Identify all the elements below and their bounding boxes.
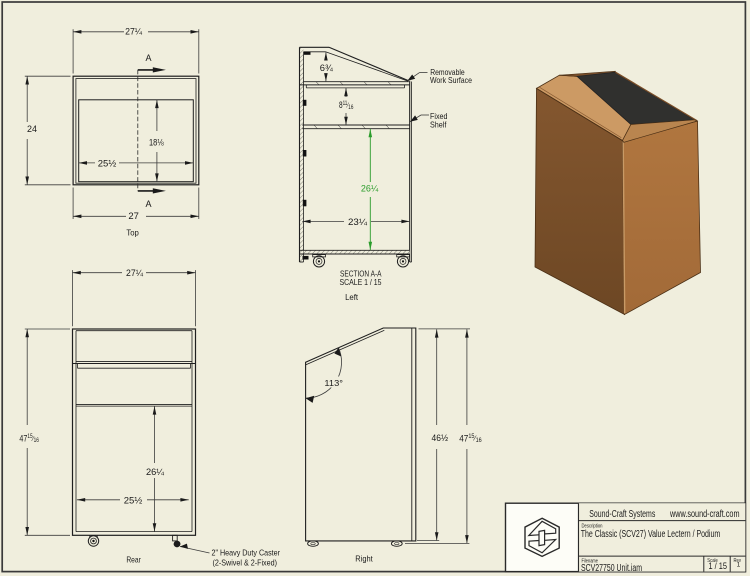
- svg-text:27¼: 27¼: [125, 27, 142, 37]
- svg-text:2" Heavy Duty Caster: 2" Heavy Duty Caster: [212, 548, 281, 558]
- svg-text:Work Surface: Work Surface: [430, 75, 472, 85]
- svg-text:A: A: [145, 199, 151, 209]
- svg-text:24: 24: [27, 124, 37, 134]
- svg-text:27¼: 27¼: [126, 268, 143, 278]
- svg-text:113°: 113°: [324, 378, 343, 388]
- svg-text:23¼: 23¼: [348, 217, 368, 227]
- svg-text:1 / 15: 1 / 15: [709, 561, 728, 572]
- svg-text:The Classic (SCV27) Value Lect: The Classic (SCV27) Value Lectern / Podi…: [581, 529, 721, 540]
- svg-text:25½: 25½: [98, 158, 117, 168]
- svg-text:26¼: 26¼: [146, 467, 164, 477]
- svg-text:46½: 46½: [432, 433, 449, 443]
- svg-text:Top: Top: [126, 227, 139, 237]
- svg-text:26¼: 26¼: [361, 184, 379, 194]
- svg-text:Shelf: Shelf: [430, 119, 447, 129]
- svg-text:www.sound-craft.com: www.sound-craft.com: [669, 509, 739, 520]
- svg-text:SCV27750 Unit.iam: SCV27750 Unit.iam: [581, 563, 642, 574]
- svg-text:Right: Right: [355, 553, 373, 563]
- svg-text:Left: Left: [345, 292, 359, 302]
- svg-text:6¾: 6¾: [320, 63, 334, 73]
- svg-text:27: 27: [128, 211, 139, 221]
- svg-text:SCALE 1 / 15: SCALE 1 / 15: [340, 277, 382, 287]
- svg-text:25½: 25½: [124, 495, 143, 505]
- svg-text:Sound-Craft Systems: Sound-Craft Systems: [589, 509, 655, 520]
- svg-text:18⅛: 18⅛: [149, 137, 164, 147]
- svg-text:Rear: Rear: [126, 554, 141, 564]
- svg-text:(2-Swivel & 2-Fixed): (2-Swivel & 2-Fixed): [213, 558, 278, 568]
- svg-text:1: 1: [737, 562, 741, 569]
- svg-text:A: A: [145, 53, 151, 63]
